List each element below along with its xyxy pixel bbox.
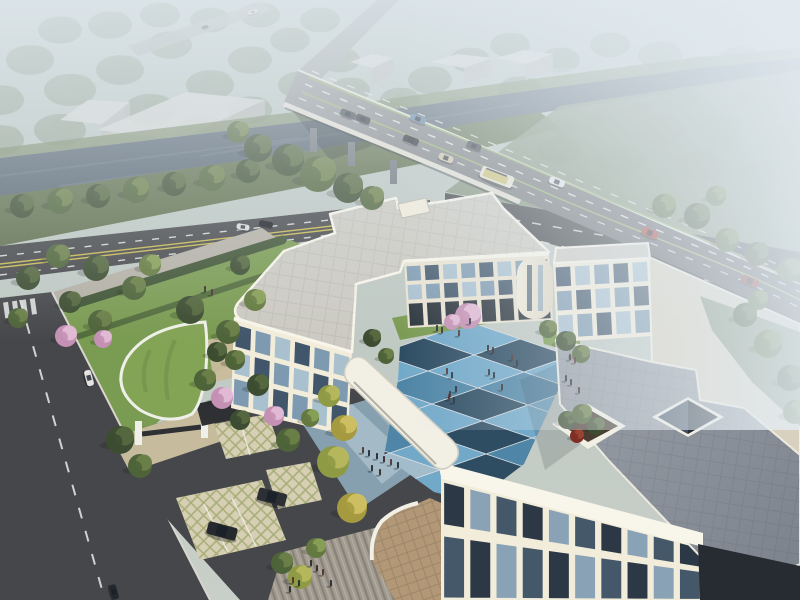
window [497,496,517,536]
window [444,536,464,597]
window [444,483,464,528]
window [233,379,249,408]
window [470,540,490,598]
window [523,547,543,598]
window [601,523,621,554]
window [628,562,648,599]
window [575,516,595,549]
window [497,544,517,598]
window [274,363,290,388]
window [523,503,543,541]
window [549,510,569,545]
window [601,558,621,598]
window [293,368,309,393]
rendering-canvas [0,0,800,600]
aerial-rendering [0,0,800,600]
window [680,569,700,599]
top-right-haze [400,0,800,430]
window [470,489,490,531]
window [294,342,310,367]
window [549,551,569,598]
window [654,566,674,599]
window [314,347,330,372]
window [575,555,595,599]
gate-pillar-left [135,421,142,445]
